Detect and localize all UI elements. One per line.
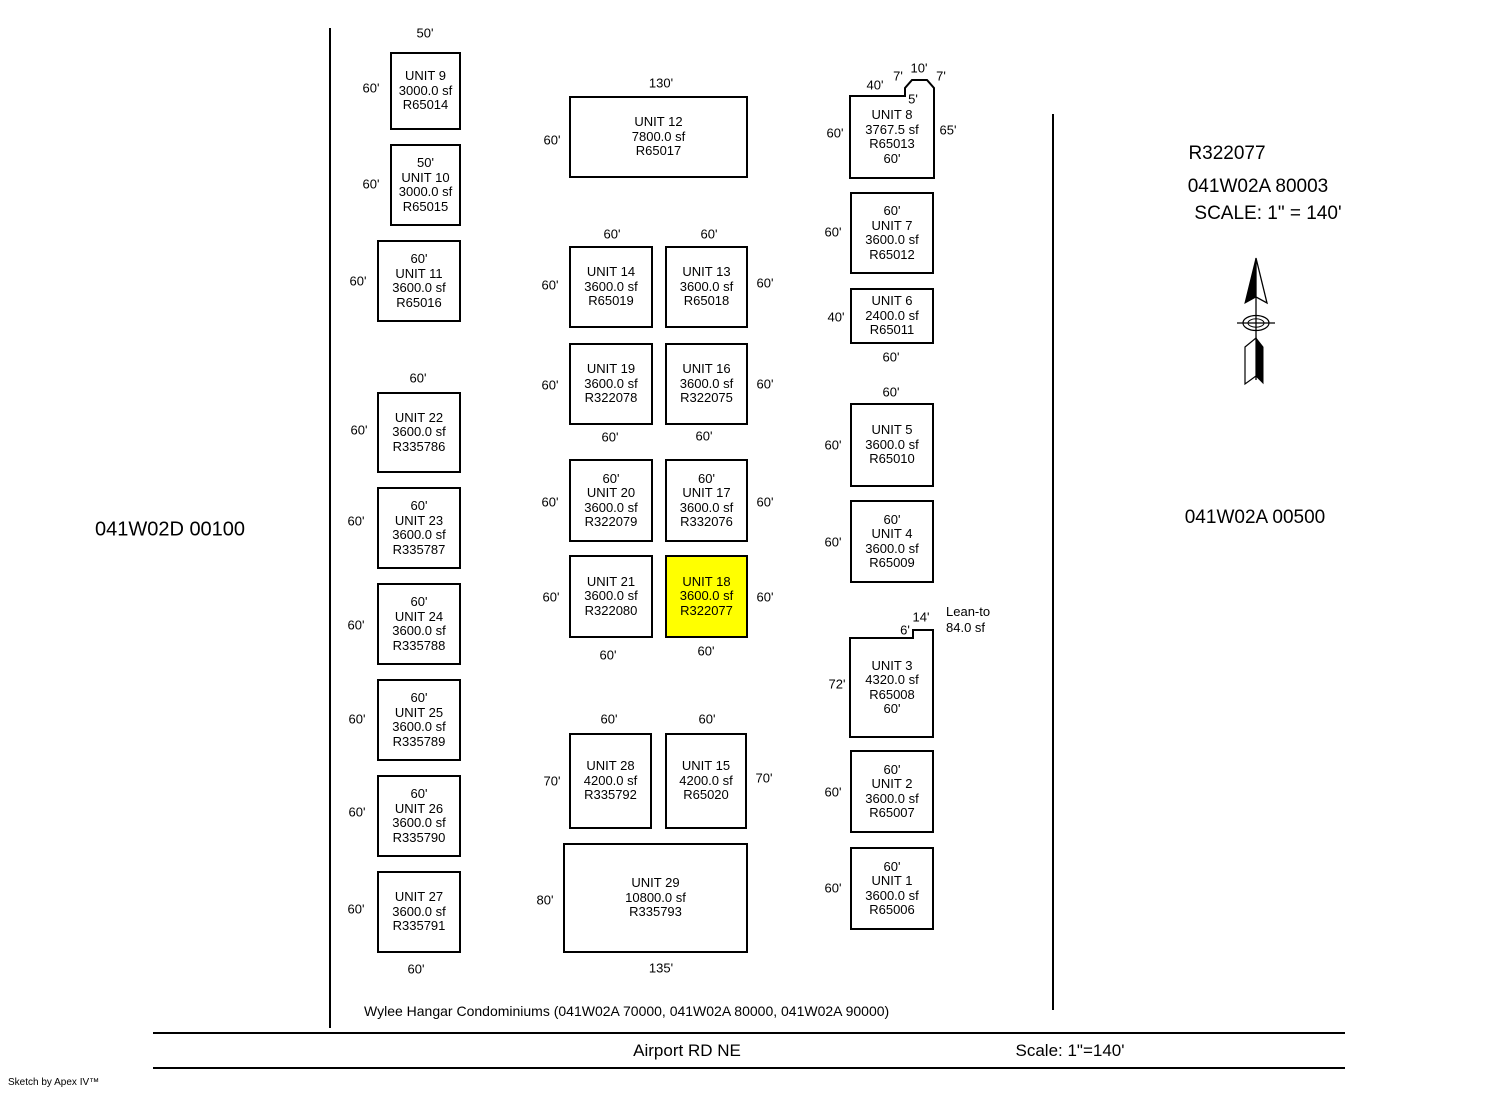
unit-text-line: R65009 bbox=[869, 556, 915, 571]
dimension-label: 60' bbox=[827, 126, 844, 141]
unit-text-line: 60' bbox=[698, 472, 715, 487]
dimension-label: 60' bbox=[883, 350, 900, 365]
unit-text-line: R335787 bbox=[393, 543, 446, 558]
unit-text-line: 4200.0 sf bbox=[584, 774, 638, 789]
unit-text-line: 3600.0 sf bbox=[865, 438, 919, 453]
unit-text-line: UNIT 5 bbox=[872, 423, 913, 438]
unit-box-unit-14[interactable]: UNIT 143600.0 sfR65019 bbox=[569, 246, 653, 328]
scale-label-bottom: Scale: 1"=140' bbox=[1016, 1041, 1125, 1061]
unit-box-unit-25[interactable]: 60'UNIT 253600.0 sfR335789 bbox=[377, 679, 461, 761]
unit-text-line: R65008 bbox=[869, 688, 915, 703]
unit-text-line: 10800.0 sf bbox=[625, 891, 686, 906]
unit-box-unit-9[interactable]: UNIT 93000.0 sfR65014 bbox=[390, 52, 461, 130]
north-arrow-icon bbox=[1228, 252, 1288, 392]
dimension-label: 60' bbox=[701, 227, 718, 242]
unit-text-line: UNIT 15 bbox=[682, 759, 730, 774]
dimension-label: 14' bbox=[913, 610, 930, 625]
unit-text-line: 3600.0 sf bbox=[865, 233, 919, 248]
unit-text-line: UNIT 20 bbox=[587, 486, 635, 501]
unit-text-line: UNIT 25 bbox=[395, 706, 443, 721]
dimension-label: 40' bbox=[867, 78, 884, 93]
unit-box-unit-27[interactable]: UNIT 273600.0 sfR335791 bbox=[377, 871, 461, 953]
unit-text-line: R65016 bbox=[396, 296, 442, 311]
unit-box-unit-2[interactable]: 60'UNIT 23600.0 sfR65007 bbox=[850, 750, 934, 833]
dimension-label: 60' bbox=[543, 590, 560, 605]
dimension-label: 60' bbox=[363, 177, 380, 192]
dimension-label: 60' bbox=[349, 712, 366, 727]
dimension-label: 70' bbox=[544, 774, 561, 789]
unit-text-line: 60' bbox=[411, 252, 428, 267]
dimension-label: 65' bbox=[940, 123, 957, 138]
unit-text-line: UNIT 11 bbox=[395, 267, 442, 282]
unit-box-unit-15[interactable]: UNIT 154200.0 sfR65020 bbox=[665, 733, 747, 829]
unit-text-line: UNIT 22 bbox=[395, 411, 443, 426]
dimension-label: 10' bbox=[911, 61, 928, 76]
dimension-label: 60' bbox=[348, 902, 365, 917]
dimension-label: 60' bbox=[348, 618, 365, 633]
unit-box-unit-10[interactable]: 50'UNIT 103000.0 sfR65015 bbox=[390, 144, 461, 226]
unit-box-unit-17[interactable]: 60'UNIT 173600.0 sfR332076 bbox=[665, 459, 748, 542]
unit-text-line: 7800.0 sf bbox=[632, 130, 686, 145]
dimension-label: 60' bbox=[542, 278, 559, 293]
dimension-label: 60' bbox=[408, 962, 425, 977]
unit-text-line: R65019 bbox=[588, 294, 634, 309]
dimension-label: 40' bbox=[828, 310, 845, 325]
dimension-label: 135' bbox=[649, 961, 673, 976]
unit-text-line: UNIT 17 bbox=[682, 486, 730, 501]
unit-box-unit-7[interactable]: 60'UNIT 73600.0 sfR65012 bbox=[850, 192, 934, 274]
unit-text-line: 3600.0 sf bbox=[680, 280, 734, 295]
dimension-label: 60' bbox=[350, 274, 367, 289]
unit-text-line: R335786 bbox=[393, 440, 446, 455]
dimension-label: 130' bbox=[649, 76, 673, 91]
unit-text-line: UNIT 23 bbox=[395, 514, 443, 529]
dimension-label: 60' bbox=[604, 227, 621, 242]
unit-box-unit-6[interactable]: UNIT 62400.0 sfR65011 bbox=[850, 288, 934, 344]
dimension-label: 60' bbox=[825, 225, 842, 240]
unit-text-line: 3600.0 sf bbox=[392, 425, 446, 440]
unit-text-line: UNIT 8 bbox=[872, 108, 913, 123]
sketch-credit: Sketch by Apex IV™ bbox=[8, 1077, 99, 1088]
unit-text-line: UNIT 27 bbox=[395, 890, 443, 905]
lean-to-annotation: Lean-to 84.0 sf bbox=[946, 604, 990, 636]
unit-box-unit-23[interactable]: 60'UNIT 233600.0 sfR335787 bbox=[377, 487, 461, 569]
unit-text-line: 3600.0 sf bbox=[680, 501, 734, 516]
unit-text-line: 60' bbox=[411, 691, 428, 706]
unit-text-line: 60' bbox=[884, 513, 901, 528]
dimension-label: 60' bbox=[542, 495, 559, 510]
unit-text-line: 3600.0 sf bbox=[392, 624, 446, 639]
unit-text-line: 3600.0 sf bbox=[392, 816, 446, 831]
unit-box-unit-18[interactable]: UNIT 183600.0 sfR322077 bbox=[665, 555, 748, 638]
dimension-label: 72' bbox=[829, 677, 846, 692]
unit-text-line: R335790 bbox=[393, 831, 446, 846]
unit-text-line: R65013 bbox=[869, 137, 915, 152]
unit-text-line: R322080 bbox=[585, 604, 638, 619]
unit-box-unit-8[interactable]: UNIT 83767.5 sfR6501360' bbox=[850, 96, 934, 178]
unit-text-line: 60' bbox=[884, 152, 901, 167]
unit-text-line: R65014 bbox=[403, 98, 449, 113]
dimension-label: 60' bbox=[410, 371, 427, 386]
unit-box-unit-29[interactable]: UNIT 2910800.0 sfR335793 bbox=[563, 843, 748, 953]
unit-text-line: UNIT 21 bbox=[587, 575, 635, 590]
unit-text-line: 3000.0 sf bbox=[399, 185, 453, 200]
unit-text-line: 3600.0 sf bbox=[680, 377, 734, 392]
road-bottom-line bbox=[153, 1067, 1345, 1069]
unit-text-line: 3600.0 sf bbox=[680, 589, 734, 604]
road-name-label: Airport RD NE bbox=[633, 1041, 741, 1061]
unit-text-line: R332076 bbox=[680, 515, 733, 530]
dimension-label: 60' bbox=[883, 385, 900, 400]
unit-box-unit-4[interactable]: 60'UNIT 43600.0 sfR65009 bbox=[850, 500, 934, 583]
dimension-label: 60' bbox=[699, 712, 716, 727]
right-boundary-line bbox=[1052, 114, 1054, 1010]
unit-text-line: R65010 bbox=[869, 452, 915, 467]
dimension-label: 50' bbox=[417, 26, 434, 41]
unit-box-unit-26[interactable]: 60'UNIT 263600.0 sfR335790 bbox=[377, 775, 461, 857]
sketch-canvas: 041W02D 00100 R322077 041W02A 80003 SCAL… bbox=[0, 0, 1492, 1094]
dimension-label: 60' bbox=[363, 81, 380, 96]
unit-text-line: R65018 bbox=[684, 294, 730, 309]
dimension-label: 60' bbox=[349, 805, 366, 820]
unit-text-line: 60' bbox=[411, 595, 428, 610]
unit-text-line: 60' bbox=[884, 860, 901, 875]
dimension-label: 6' bbox=[900, 623, 910, 638]
dimension-label: 60' bbox=[601, 712, 618, 727]
unit-text-line: 3600.0 sf bbox=[392, 905, 446, 920]
dimension-label: 60' bbox=[757, 495, 774, 510]
unit-text-line: 3000.0 sf bbox=[399, 84, 453, 99]
unit-text-line: UNIT 19 bbox=[587, 362, 635, 377]
unit-text-line: R65006 bbox=[869, 903, 915, 918]
unit-box-unit-24[interactable]: 60'UNIT 243600.0 sfR335788 bbox=[377, 583, 461, 665]
unit-text-line: UNIT 2 bbox=[872, 777, 913, 792]
unit-text-line: UNIT 16 bbox=[682, 362, 730, 377]
unit-text-line: 3600.0 sf bbox=[392, 720, 446, 735]
unit-text-line: 3600.0 sf bbox=[584, 280, 638, 295]
unit-text-line: 3600.0 sf bbox=[392, 281, 446, 296]
unit-box-unit-5[interactable]: UNIT 53600.0 sfR65010 bbox=[850, 403, 934, 487]
unit-box-unit-22[interactable]: UNIT 223600.0 sfR335786 bbox=[377, 392, 461, 473]
unit-text-line: R65020 bbox=[683, 788, 729, 803]
dimension-label: 60' bbox=[696, 429, 713, 444]
unit-text-line: UNIT 18 bbox=[682, 575, 730, 590]
dimension-label: 5' bbox=[908, 92, 918, 107]
unit-text-line: 3600.0 sf bbox=[865, 792, 919, 807]
unit-text-line: 60' bbox=[603, 472, 620, 487]
unit-text-line: R65007 bbox=[869, 806, 915, 821]
parcel-label-top-right: 041W02A 80003 bbox=[1188, 176, 1329, 198]
dimension-label: 60' bbox=[544, 133, 561, 148]
lean-to-annotation-line1: Lean-to bbox=[946, 604, 990, 620]
unit-text-line: UNIT 13 bbox=[682, 265, 730, 280]
unit-box-unit-12[interactable]: UNIT 127800.0 sfR65017 bbox=[569, 96, 748, 178]
dimension-label: 60' bbox=[757, 377, 774, 392]
dimension-label: 60' bbox=[825, 881, 842, 896]
unit-text-line: 3767.5 sf bbox=[865, 123, 919, 138]
unit-text-line: UNIT 9 bbox=[405, 69, 446, 84]
unit-text-line: 3600.0 sf bbox=[584, 589, 638, 604]
unit-box-unit-1[interactable]: 60'UNIT 13600.0 sfR65006 bbox=[850, 847, 934, 930]
unit-text-line: UNIT 28 bbox=[586, 759, 634, 774]
unit-box-unit-19[interactable]: UNIT 193600.0 sfR322078 bbox=[569, 343, 653, 425]
unit-box-unit-20[interactable]: 60'UNIT 203600.0 sfR322079 bbox=[569, 459, 653, 542]
unit-box-unit-3[interactable]: UNIT 34320.0 sfR6500860' bbox=[850, 638, 934, 737]
dimension-label: 60' bbox=[825, 535, 842, 550]
unit-text-line: 3600.0 sf bbox=[584, 377, 638, 392]
dimension-label: 7' bbox=[893, 69, 903, 84]
unit-text-line: R335792 bbox=[584, 788, 637, 803]
unit-text-line: 60' bbox=[411, 787, 428, 802]
unit-text-line: 2400.0 sf bbox=[865, 309, 919, 324]
dimension-label: 60' bbox=[602, 430, 619, 445]
road-top-line bbox=[153, 1032, 1345, 1034]
unit-text-line: UNIT 3 bbox=[872, 659, 913, 674]
dimension-label: 60' bbox=[825, 438, 842, 453]
unit-text-line: 60' bbox=[884, 763, 901, 778]
unit-text-line: 4320.0 sf bbox=[865, 673, 919, 688]
dimension-label: 60' bbox=[698, 644, 715, 659]
unit-text-line: 50' bbox=[417, 156, 434, 171]
unit-box-unit-21[interactable]: UNIT 213600.0 sfR322080 bbox=[569, 555, 653, 638]
unit-text-line: 60' bbox=[884, 702, 901, 717]
unit-text-line: 60' bbox=[884, 204, 901, 219]
unit-text-line: R65015 bbox=[403, 200, 449, 215]
unit-text-line: R65012 bbox=[869, 248, 915, 263]
parcel-label-left: 041W02D 00100 bbox=[95, 519, 245, 542]
unit-text-line: UNIT 1 bbox=[872, 874, 913, 889]
unit-text-line: UNIT 7 bbox=[872, 219, 913, 234]
unit-text-line: R322079 bbox=[585, 515, 638, 530]
unit-text-line: 3600.0 sf bbox=[865, 542, 919, 557]
dimension-label: 80' bbox=[537, 893, 554, 908]
unit-text-line: 3600.0 sf bbox=[865, 889, 919, 904]
unit-text-line: UNIT 12 bbox=[634, 115, 682, 130]
dimension-label: 60' bbox=[757, 276, 774, 291]
unit-text-line: R335793 bbox=[629, 905, 682, 920]
unit-text-line: R335791 bbox=[393, 919, 446, 934]
dimension-label: 60' bbox=[825, 785, 842, 800]
unit-text-line: R322075 bbox=[680, 391, 733, 406]
condo-title-note: Wylee Hangar Condominiums (041W02A 70000… bbox=[364, 1003, 889, 1019]
dimension-label: 7' bbox=[936, 69, 946, 84]
dimension-label: 60' bbox=[542, 378, 559, 393]
unit-text-line: UNIT 14 bbox=[587, 265, 635, 280]
unit-text-line: 3600.0 sf bbox=[584, 501, 638, 516]
unit-box-unit-13[interactable]: UNIT 133600.0 sfR65018 bbox=[665, 246, 748, 328]
unit-text-line: R65017 bbox=[636, 144, 682, 159]
unit-text-line: UNIT 6 bbox=[872, 294, 913, 309]
scale-label-right: SCALE: 1" = 140' bbox=[1194, 203, 1341, 225]
unit-text-line: R65011 bbox=[870, 323, 915, 338]
dimension-label: 60' bbox=[348, 514, 365, 529]
dimension-label: 70' bbox=[756, 771, 773, 786]
unit-box-unit-11[interactable]: 60'UNIT 113600.0 sfR65016 bbox=[377, 240, 461, 322]
parcel-label-right: 041W02A 00500 bbox=[1185, 507, 1326, 529]
unit-box-unit-16[interactable]: UNIT 163600.0 sfR322075 bbox=[665, 343, 748, 425]
unit-text-line: R335789 bbox=[393, 735, 446, 750]
unit-box-unit-28[interactable]: UNIT 284200.0 sfR335792 bbox=[569, 733, 652, 829]
sketch-ref-label: R322077 bbox=[1188, 143, 1265, 165]
unit-text-line: UNIT 4 bbox=[872, 527, 913, 542]
dimension-label: 60' bbox=[351, 423, 368, 438]
unit-text-line: UNIT 29 bbox=[631, 876, 679, 891]
unit-text-line: R322077 bbox=[680, 604, 733, 619]
unit-text-line: 60' bbox=[411, 499, 428, 514]
lean-to-annotation-line2: 84.0 sf bbox=[946, 620, 990, 636]
unit-text-line: UNIT 26 bbox=[395, 802, 443, 817]
unit-text-line: UNIT 10 bbox=[401, 171, 449, 186]
unit-text-line: R335788 bbox=[393, 639, 446, 654]
dimension-label: 60' bbox=[757, 590, 774, 605]
dimension-label: 60' bbox=[600, 648, 617, 663]
unit-text-line: 3600.0 sf bbox=[392, 528, 446, 543]
unit-text-line: UNIT 24 bbox=[395, 610, 443, 625]
unit-text-line: R322078 bbox=[585, 391, 638, 406]
unit-text-line: 4200.0 sf bbox=[679, 774, 733, 789]
left-boundary-line bbox=[329, 28, 331, 1028]
